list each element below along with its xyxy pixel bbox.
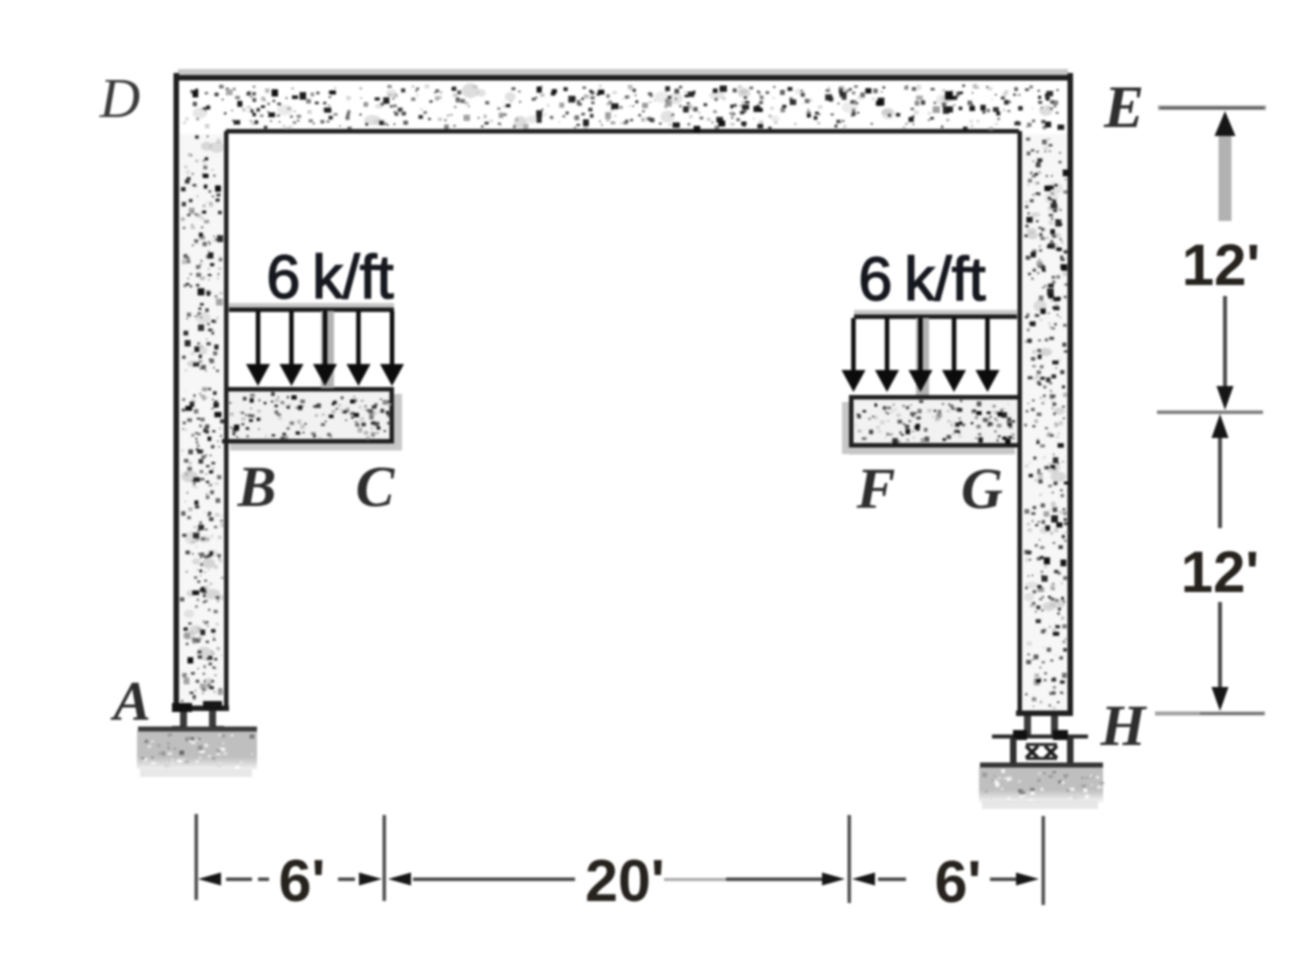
svg-text:20': 20' xyxy=(585,848,665,914)
svg-text:6 k/ft: 6 k/ft xyxy=(266,243,393,311)
svg-text:6': 6' xyxy=(279,848,326,914)
svg-text:H: H xyxy=(1099,693,1147,758)
svg-text:D: D xyxy=(99,68,140,130)
svg-text:12': 12' xyxy=(1182,233,1260,298)
svg-text:E: E xyxy=(1103,74,1144,140)
svg-text:A: A xyxy=(110,671,150,733)
svg-text:C: C xyxy=(356,454,396,519)
svg-text:B: B xyxy=(237,454,277,519)
svg-text:12': 12' xyxy=(1181,540,1259,605)
svg-text:6 k/ft: 6 k/ft xyxy=(858,245,985,313)
svg-text:F: F xyxy=(856,456,896,521)
svg-text:6': 6' xyxy=(935,849,982,915)
svg-text:G: G xyxy=(961,456,1003,521)
